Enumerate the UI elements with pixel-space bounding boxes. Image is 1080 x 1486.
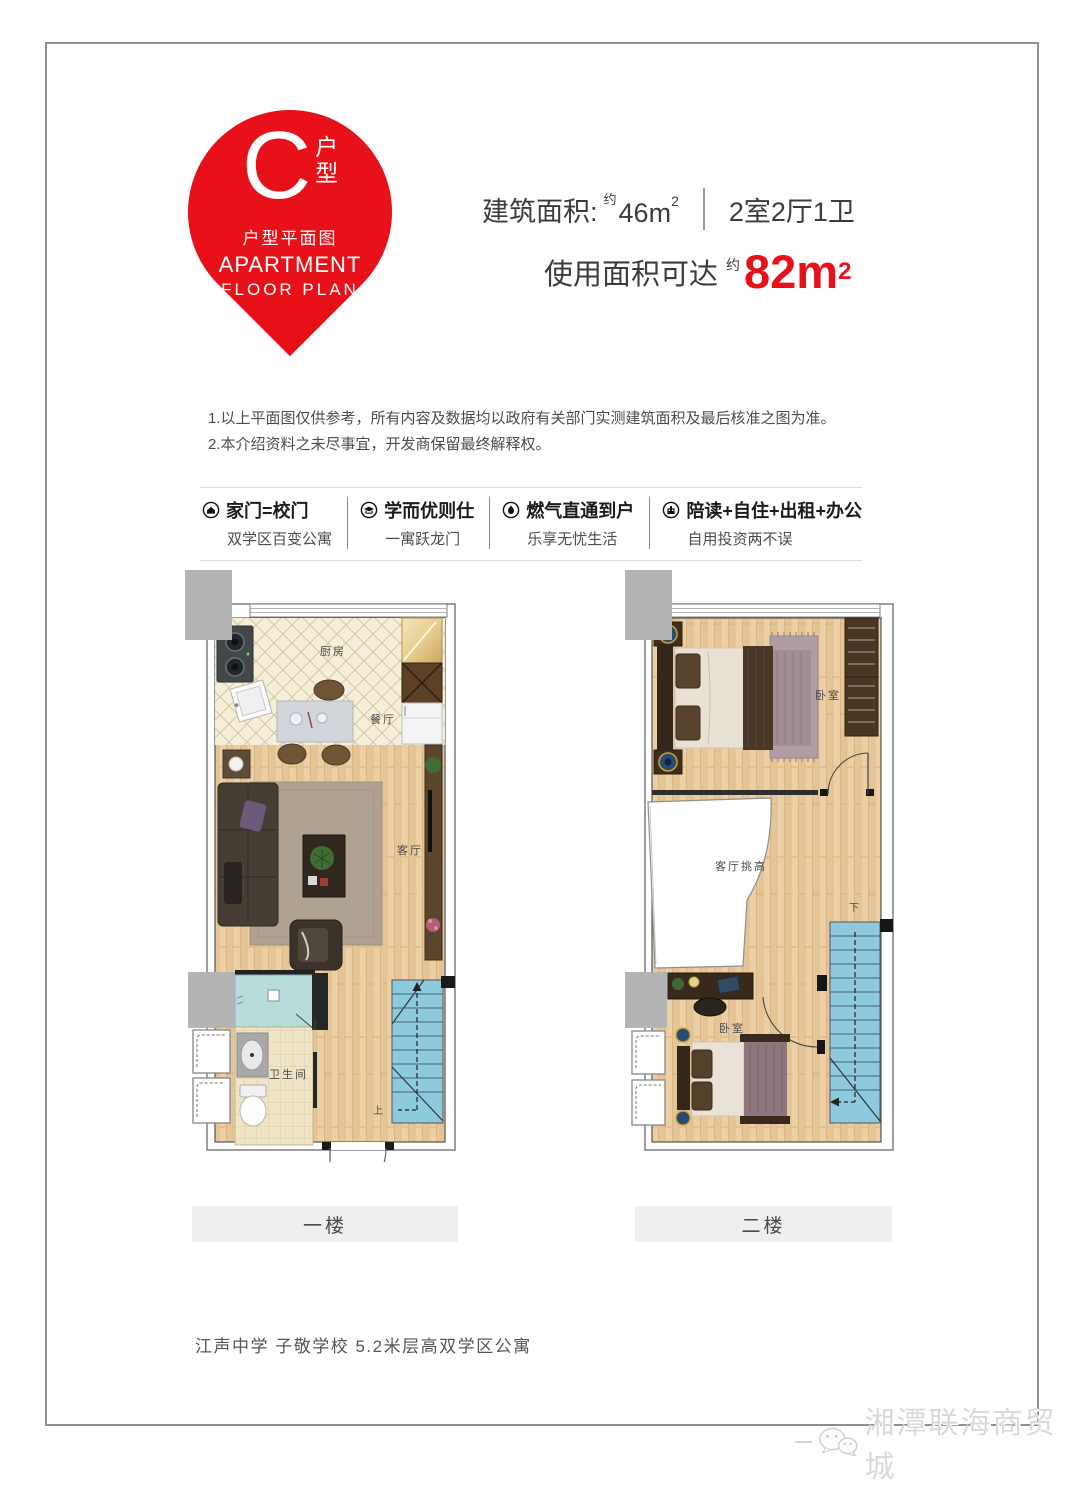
desk-chair <box>694 998 726 1016</box>
bedroom-top-label: 卧室 <box>815 688 841 702</box>
usable-area-sup: 2 <box>838 258 851 286</box>
bath-wall <box>235 970 315 975</box>
area-header: 建筑面积: 约46m2 2室2厅1卫 使用面积可达 约 82m2 <box>482 188 922 295</box>
scholar-icon <box>360 501 378 519</box>
stairs-down-label: 下 <box>849 903 859 914</box>
floor1-plan: 厨房 餐厅 <box>184 562 480 1162</box>
floor1-bar-label: 一楼 <box>192 1206 458 1242</box>
dining-chair <box>314 680 344 700</box>
watermark: 湘潭联海商贸城 <box>795 1398 1080 1486</box>
headboard <box>677 1046 690 1110</box>
side-table <box>223 750 250 778</box>
build-area-label: 建筑面积: <box>482 190 598 229</box>
wechat-icon <box>816 1423 860 1461</box>
disclaimer-line1: 1.以上平面图仅供参考，所有内容及数据均以政府有关部门实测建筑面积及最后核准之图… <box>208 406 836 432</box>
shaft-block <box>185 570 232 640</box>
plant <box>425 757 441 773</box>
pillow <box>692 1082 712 1110</box>
wardrobe <box>845 618 878 736</box>
bathroom-label: 卫生间 <box>269 1067 308 1081</box>
feature-title-row: 学而优则仕 <box>360 497 474 523</box>
shaft-block <box>625 972 667 1028</box>
school-gate-icon <box>202 501 220 519</box>
usable-area-row: 使用面积可达 约 82m2 <box>544 248 922 295</box>
pin-subtitle-cn: 户型平面图 <box>243 224 338 249</box>
watermark-text: 湘潭联海商贸城 <box>865 1398 1080 1486</box>
vertical-divider <box>703 188 705 230</box>
bedroom-bottom-label: 卧室 <box>719 1021 745 1035</box>
build-area-value: 46m <box>619 198 672 228</box>
type-label-char1: 户 <box>315 134 338 160</box>
floor2-plan: 卧室 客厅挑高 下 <box>616 562 912 1162</box>
stairs-up-label: 上 <box>373 1105 383 1117</box>
kitchen-dining-zone: 厨房 餐厅 <box>215 618 445 765</box>
armchair <box>290 920 342 970</box>
wall-segment <box>313 1052 317 1108</box>
headboard <box>657 644 673 750</box>
shower-drain <box>268 990 279 1001</box>
feature-title: 燃气直通到户 <box>526 497 634 523</box>
feature-scholar: 学而优则仕 一寓跃龙门 <box>347 497 486 549</box>
feature-subtitle: 自用投资两不误 <box>687 528 862 549</box>
disclaimer-line2: 2.本介绍资料之未尽事宜，开发商保留最终解释权。 <box>208 432 836 458</box>
build-area-row: 建筑面积: 约46m2 2室2厅1卫 <box>482 188 922 230</box>
pin-subtitle-en1: APARTMENT <box>219 252 362 278</box>
feature-title-row: 陪读+自住+出租+办公 <box>662 497 862 523</box>
type-c-pin: C 户 型 户型平面图 APARTMENT FLOOR PLAN <box>146 68 434 356</box>
dining-label: 餐厅 <box>370 712 396 726</box>
flowers <box>426 918 440 932</box>
disclaimer: 1.以上平面图仅供参考，所有内容及数据均以政府有关部门实测建筑面积及最后核准之图… <box>208 406 836 458</box>
feature-subtitle: 双学区百变公寓 <box>227 528 332 549</box>
tall-cabinet <box>402 618 442 703</box>
feature-multi-use: 陪读+自住+出租+办公 自用投资两不误 <box>649 497 862 549</box>
pin-title-row: C 户 型 <box>242 118 338 214</box>
build-area-approx: 约 <box>604 192 617 207</box>
sofa <box>218 783 278 926</box>
shaft-block <box>188 972 235 1028</box>
build-area-sup: 2 <box>671 193 679 209</box>
feature-title: 家门=校门 <box>226 497 309 523</box>
entry-door <box>322 1142 394 1162</box>
multi-use-icon <box>662 501 680 519</box>
feature-school-gate: 家门=校门 双学区百变公寓 <box>200 497 344 549</box>
pillow <box>676 706 700 740</box>
pin-subtitle-en2: FLOOR PLAN <box>221 280 359 300</box>
usable-area-value: 82m <box>744 248 838 295</box>
nightstand <box>676 1028 690 1042</box>
floor2-bar-label: 二楼 <box>635 1206 892 1242</box>
wall-segment <box>441 976 455 988</box>
wall-segment <box>880 919 893 932</box>
shaft-block <box>625 570 672 640</box>
watermark-dash <box>795 1441 812 1443</box>
toilet <box>240 1085 266 1126</box>
bed2 <box>677 1034 790 1124</box>
type-letter: C <box>242 118 311 214</box>
void-label: 客厅挑高 <box>715 859 767 873</box>
nightstand <box>654 750 682 774</box>
coffee-table <box>303 835 345 897</box>
feature-title-row: 燃气直通到户 <box>502 497 634 523</box>
type-label: 户 型 <box>315 134 338 186</box>
bedroom-wall <box>652 790 818 795</box>
feature-gas: 燃气直通到户 乐享无忧生活 <box>489 497 646 549</box>
flame-icon <box>502 501 520 519</box>
pin-content: C 户 型 户型平面图 APARTMENT FLOOR PLAN <box>188 110 392 314</box>
type-label-char2: 型 <box>315 160 338 186</box>
nightstand <box>676 1111 690 1125</box>
pillow <box>676 654 700 688</box>
slogan: 江声中学 子敬学校 5.2米层高双学区公寓 <box>195 1332 532 1357</box>
desk-lamp <box>689 977 699 987</box>
feature-strip: 家门=校门 双学区百变公寓 学而优则仕 一寓跃龙门 燃气直通到户 乐享无忧生活 <box>200 487 862 561</box>
feature-title: 陪读+自住+出租+办公 <box>686 497 862 523</box>
wall-segment <box>312 973 328 1030</box>
window-band <box>656 604 880 617</box>
tv-console <box>425 745 442 960</box>
feature-title: 学而优则仕 <box>384 497 474 523</box>
room-layout: 2室2厅1卫 <box>729 190 855 229</box>
laptop <box>717 976 740 993</box>
window-band <box>250 604 447 617</box>
fridge <box>402 703 442 744</box>
usable-area-label: 使用面积可达 <box>544 251 718 293</box>
desk-plant <box>672 978 684 990</box>
bathroom-sink <box>237 1033 268 1077</box>
desk <box>668 973 753 999</box>
feature-title-row: 家门=校门 <box>202 497 332 523</box>
dining-chair <box>278 744 306 764</box>
living-label: 客厅 <box>397 843 423 857</box>
feature-subtitle: 一寓跃龙门 <box>385 528 474 549</box>
pillow <box>692 1050 712 1078</box>
kitchen-label: 厨房 <box>320 645 346 658</box>
feature-subtitle: 乐享无忧生活 <box>527 528 634 549</box>
bed-runner <box>773 650 811 746</box>
usable-area-approx: 约 <box>726 255 740 275</box>
dining-chair <box>322 745 350 765</box>
double-bed <box>657 644 811 750</box>
